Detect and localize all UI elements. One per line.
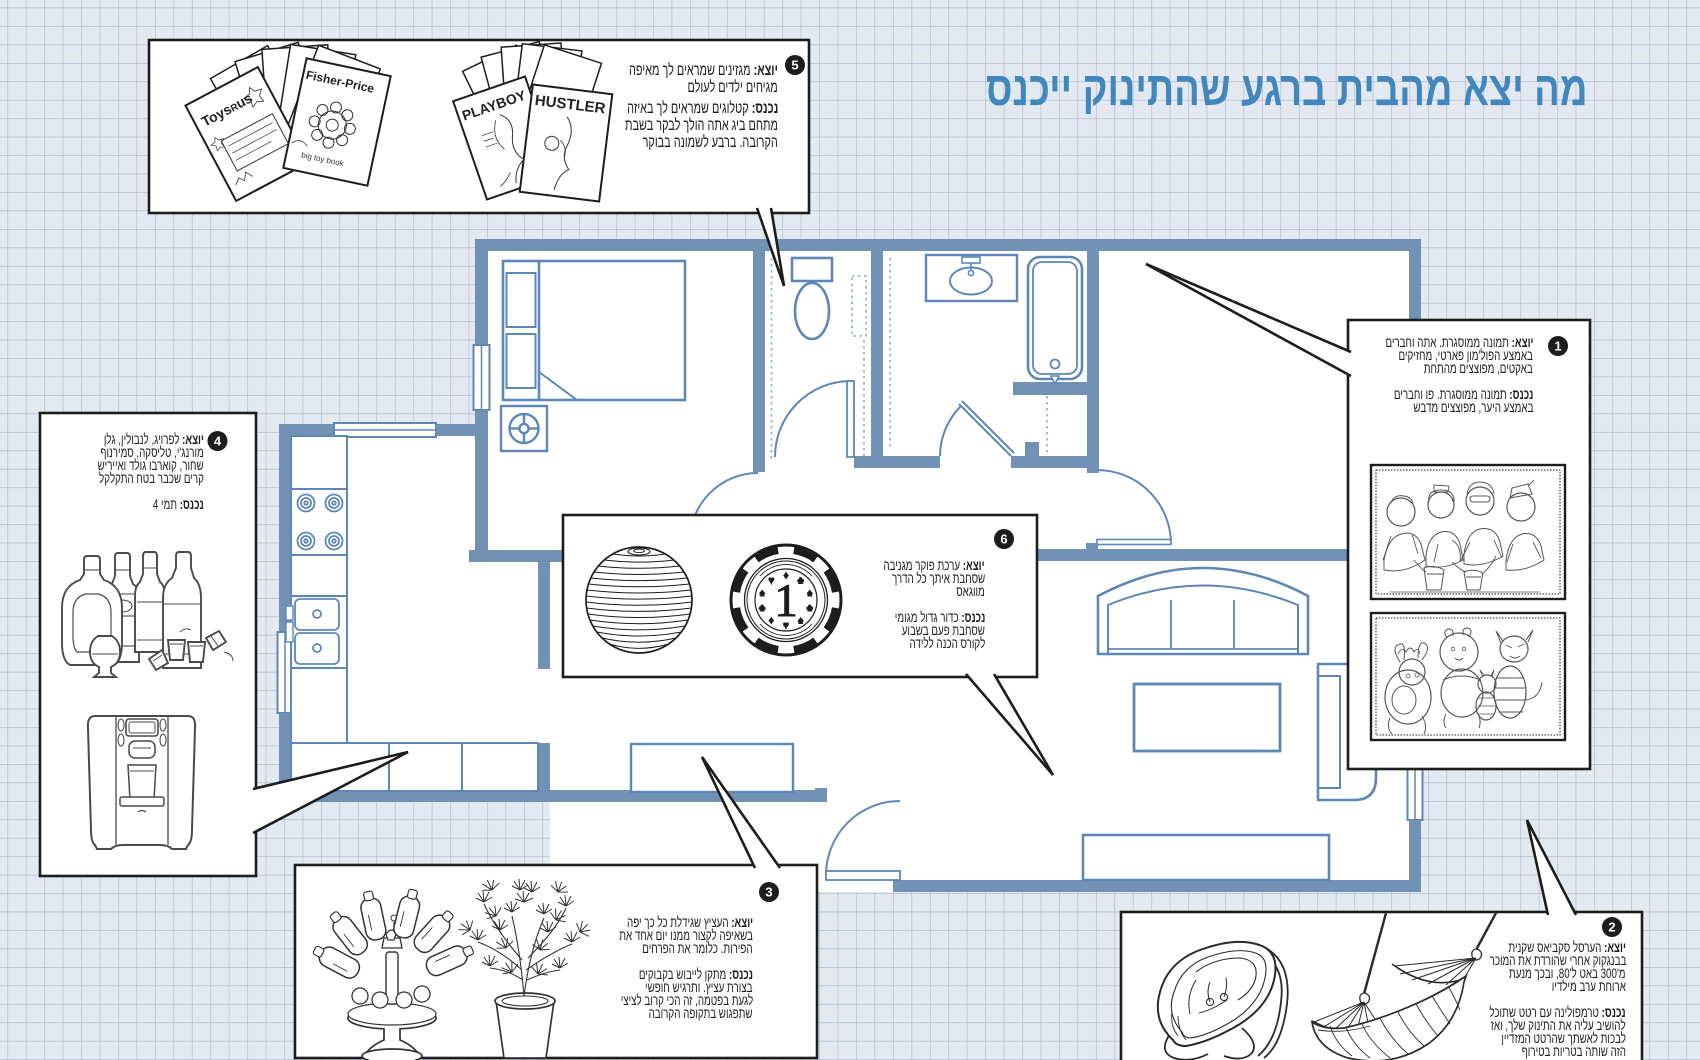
svg-text:♥: ♥: [768, 575, 774, 586]
svg-text:1: 1: [1554, 339, 1561, 354]
svg-text:♥: ♥: [783, 621, 789, 632]
svg-text:6: 6: [1000, 532, 1007, 547]
svg-text:♠: ♠: [807, 588, 813, 599]
svg-text:♣: ♣: [797, 575, 804, 586]
svg-text:♠: ♠: [760, 588, 766, 599]
svg-text:1: 1: [774, 575, 798, 627]
svg-text:3: 3: [765, 885, 772, 900]
svg-text:♣: ♣: [807, 603, 814, 614]
svg-text:4: 4: [214, 434, 222, 449]
svg-text:♦: ♦: [769, 616, 774, 627]
svg-text:♣: ♣: [759, 603, 766, 614]
svg-text:2: 2: [1608, 920, 1615, 935]
svg-text:♠: ♠: [798, 616, 804, 627]
svg-text:♦: ♦: [783, 571, 788, 582]
svg-text:5: 5: [791, 58, 798, 73]
